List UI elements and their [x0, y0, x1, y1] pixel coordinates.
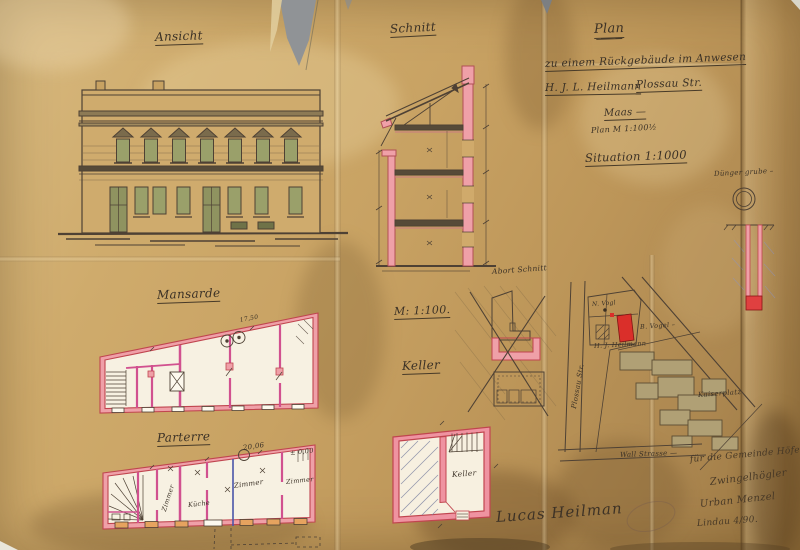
keller-plan: [393, 421, 498, 528]
abort-detail-crossed: [455, 286, 556, 420]
keller-room-label: Keller: [452, 468, 477, 479]
mansarde-plan: [100, 313, 318, 413]
pit-detail: [724, 188, 775, 310]
title-heading: Plan: [594, 21, 625, 39]
schnitt-label: Schnitt: [390, 20, 437, 38]
elevation-drawing: [58, 81, 348, 246]
title-line4: Maas —: [604, 107, 647, 121]
parterre-plan: [103, 445, 320, 549]
site-plan: [558, 277, 762, 470]
ansicht-label: Ansicht: [155, 28, 203, 46]
scanned-building-plan: Ansicht Schnitt Plan zu einem Rückgebäud…: [0, 0, 800, 550]
keller-label: Keller: [402, 358, 441, 375]
parterre-label: Parterre: [157, 429, 211, 447]
mansarde-label: Mansarde: [157, 286, 221, 304]
blue-hatch: [732, 240, 775, 298]
scale-label: M: 1:100.: [394, 303, 451, 320]
section-drawing: [376, 66, 496, 271]
title-street: Plossau Str.: [636, 77, 703, 93]
title-owner: H. J. L. Heilmann: [545, 80, 642, 96]
cesspit-dashed-lines: [214, 528, 320, 549]
